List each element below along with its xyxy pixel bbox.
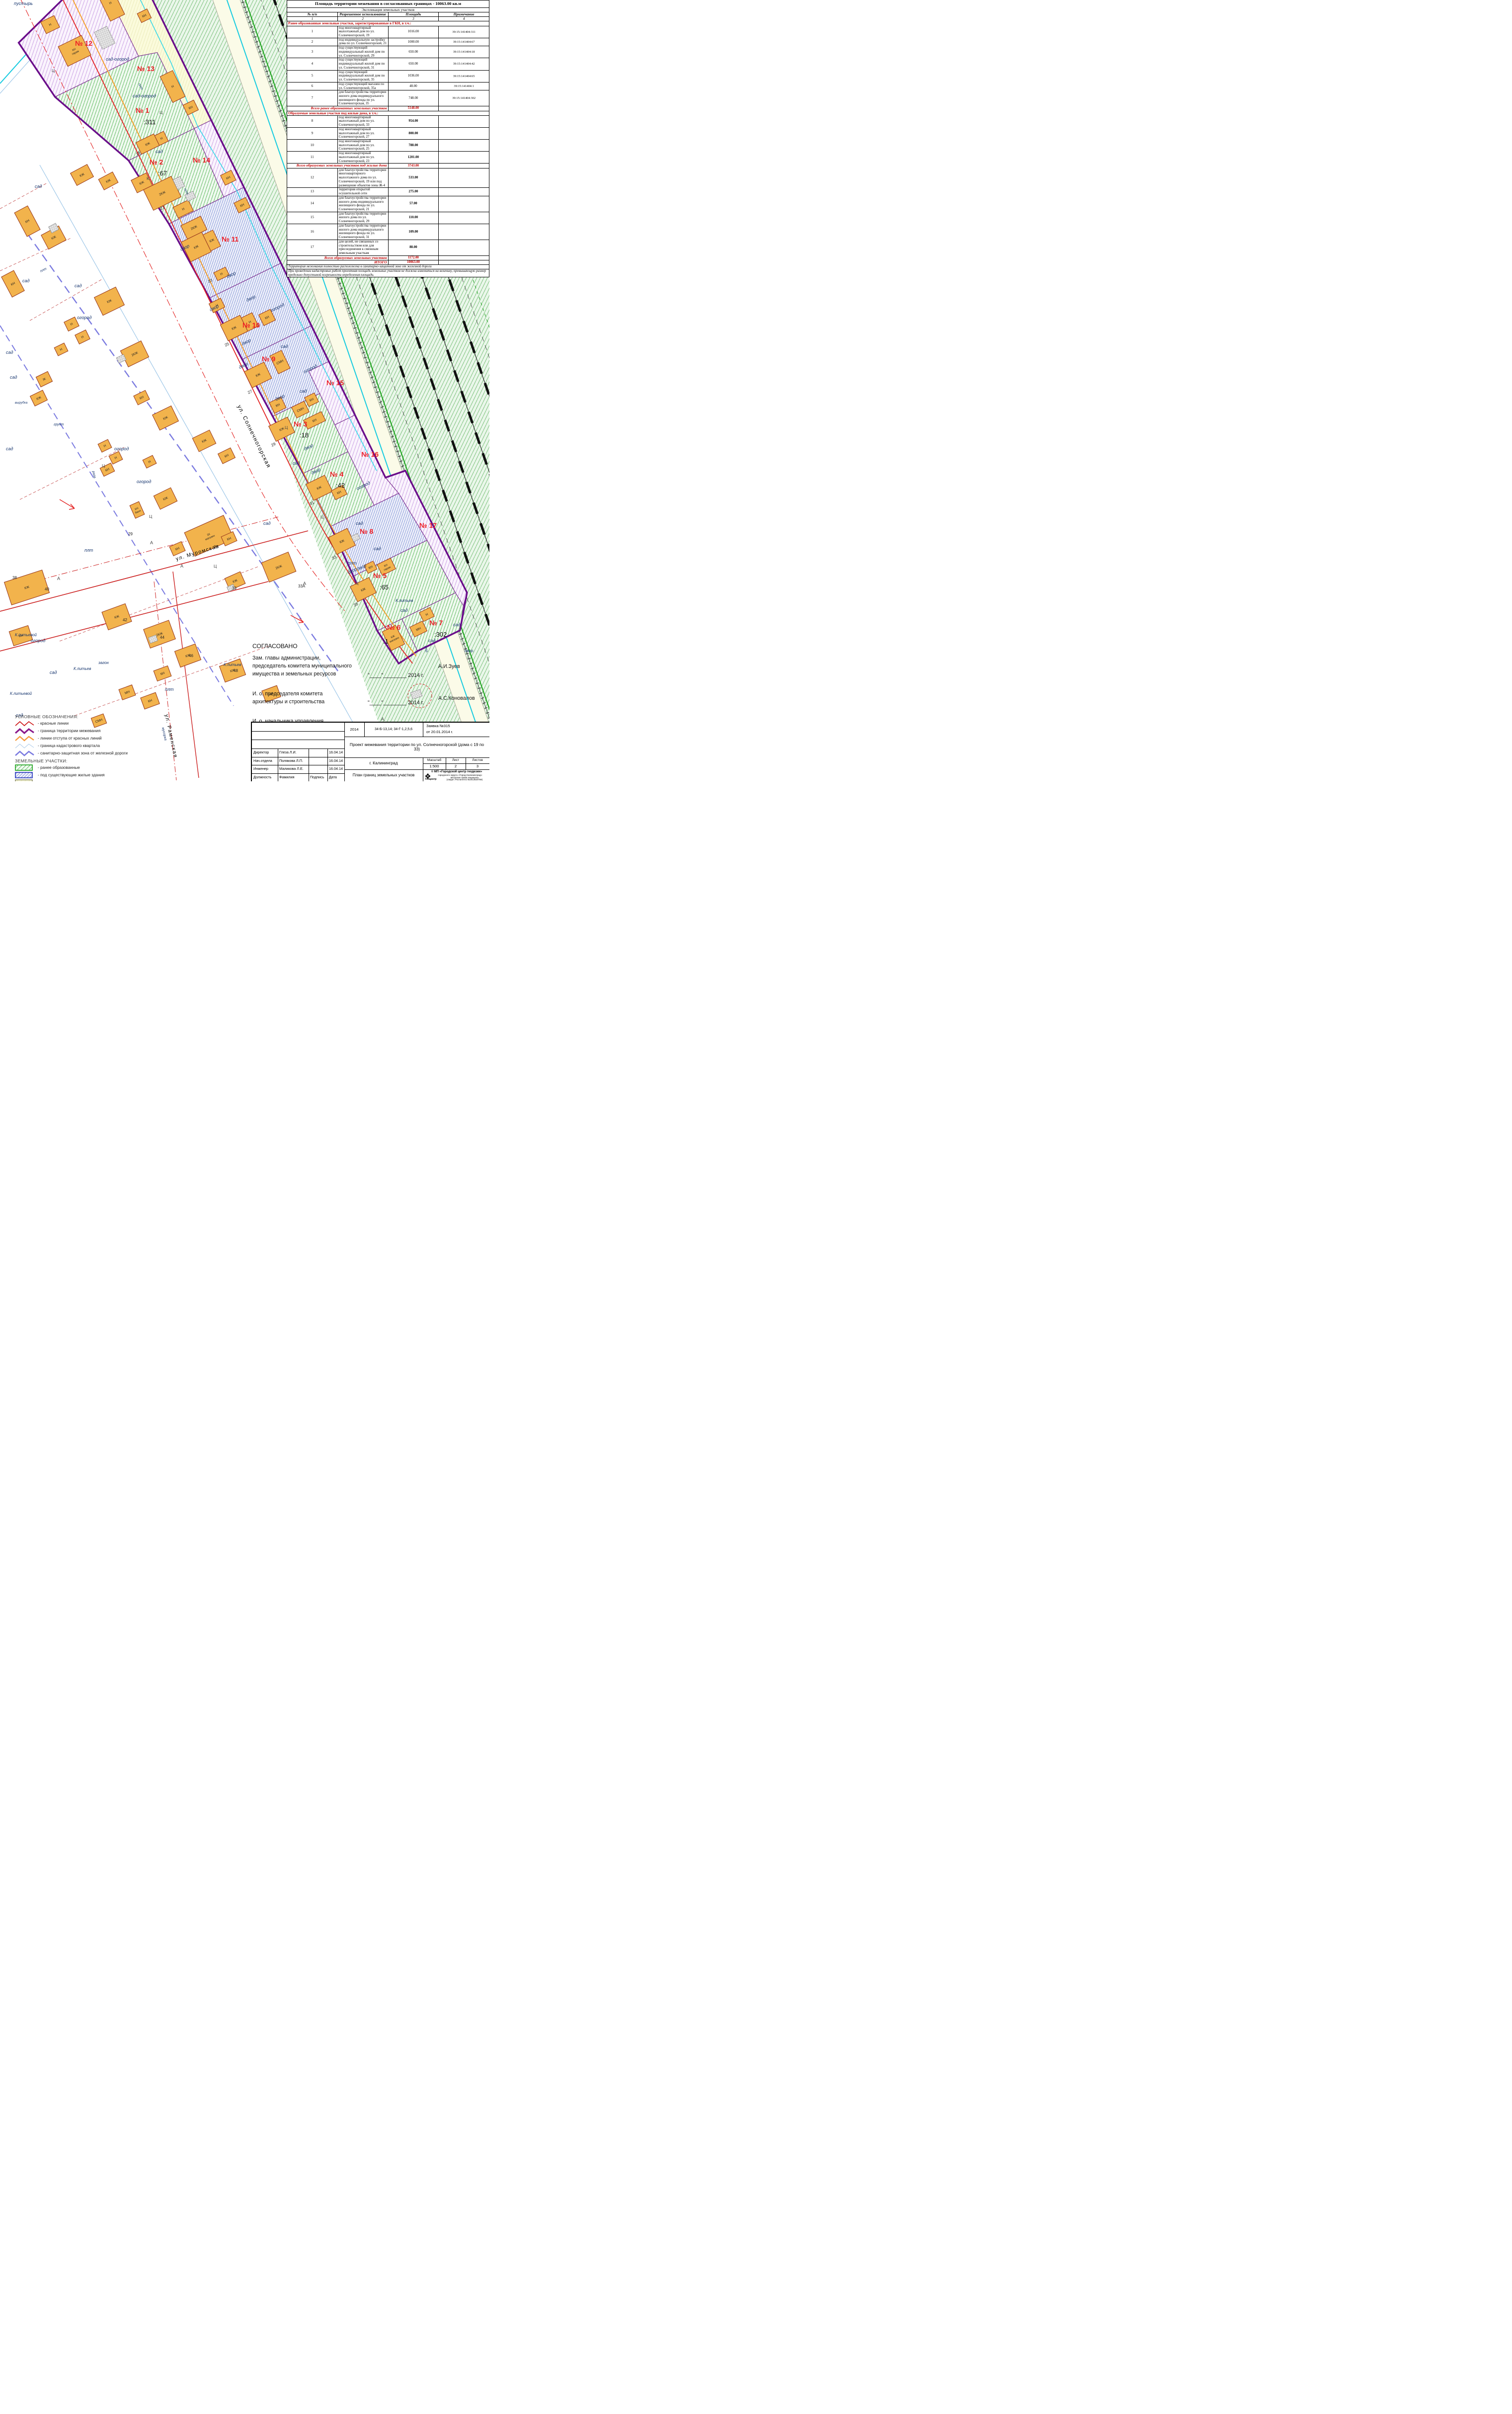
table-cell: 7 (287, 90, 338, 106)
explication-table: Площадь территории межевания в согласова… (287, 0, 489, 277)
table-cell (439, 255, 489, 260)
table-cell (439, 139, 489, 151)
table-cell: 39:15:141404:18 (439, 46, 489, 58)
legend-line-2-swatch-icon (15, 735, 35, 742)
map-text-label: К.литьевой (10, 691, 32, 696)
approval-date-blank: "____"________ 2014 г. (368, 672, 438, 678)
table-row: ИТОГО10063.00 (287, 260, 489, 265)
legend-line-0: - красные линии (15, 720, 189, 727)
table-cell: 2 (337, 17, 388, 21)
table-cell: Разрешенное использование (337, 12, 388, 17)
parcel-number-label: № 12 (75, 39, 92, 47)
legend-area-0-swatch-icon (15, 764, 35, 771)
stamp-sig-cell: Инженер (252, 765, 279, 773)
table-cell: 2 (287, 38, 338, 46)
stamp-sig-cell: Подпись (309, 773, 329, 782)
stamp-sheets-label: Листов (466, 757, 489, 763)
building: Ж (36, 371, 52, 387)
map-text-label: 25 (224, 341, 230, 347)
table-cell: под индивидуальную застройку дома по ул.… (337, 38, 388, 46)
legend-line-1: - граница территории межевания (15, 728, 189, 735)
table-cell: Всего ранее образованных земельных участ… (287, 106, 389, 111)
stamp-year: 2014 (344, 723, 364, 737)
table-cell: под существующий индивидуальный жилой до… (337, 58, 388, 70)
stamp-sig-cell: Маликова Л.Е. (278, 765, 310, 773)
map-text-label: сад (10, 375, 17, 380)
map-text-label: сад (300, 389, 307, 394)
stamp-sig-cell: Глеза Л.И. (278, 749, 310, 757)
map-text-label: сад (263, 521, 271, 526)
table-cell: 10063.00 (388, 260, 439, 265)
map-text-label: сад (6, 350, 13, 355)
stamp-sig-cell: Дата (327, 773, 346, 782)
parcel-number-label: № 17 (419, 521, 437, 529)
map-text-label: сад (50, 670, 57, 675)
parcel-number-label: № 15 (326, 379, 344, 387)
table-cell: 39:15:141404:65 (439, 70, 489, 82)
legend-area-1-swatch-icon (15, 772, 35, 779)
map-text-label: 33 (232, 586, 237, 590)
legend-line-3-label: - граница кадастрового квартала (38, 744, 100, 748)
table-cell: 14 (287, 196, 338, 212)
building: 2КЖ (120, 341, 149, 367)
legend-area-1: - под существующие жилые здания (15, 772, 189, 779)
legend-line-3: - граница кадастрового квартала (15, 743, 189, 749)
table-cell: 1000.00 (388, 38, 439, 46)
title-block: ДиректорГлеза Л.И.16.04.14Нач.отделаПоля… (251, 722, 489, 781)
stamp-sig-cell: Полякова Л.П. (278, 757, 310, 765)
legend-line-2-label: - линии отступа от красных линий (38, 736, 102, 741)
table-row: Всего ранее образованных земельных участ… (287, 106, 489, 111)
table-cell: 3743.00 (388, 164, 439, 168)
building: 2КЖ (261, 552, 296, 583)
table-cell: 4 (439, 17, 489, 21)
approval-position: Зам. главы администрации,председатель ко… (252, 655, 368, 678)
stamp-sig-cell: 16.04.14 (327, 757, 346, 765)
table-cell: № п/п (287, 12, 338, 17)
map-text-label: сад (35, 184, 42, 189)
table-row: 5под существующий индивидуальный жилой д… (287, 70, 489, 82)
parcel-number-label: № 16 (361, 450, 379, 458)
building: КН (141, 692, 159, 709)
building: 2КЖ (144, 620, 175, 648)
stamp-logo-text: Геоцентр (423, 778, 438, 781)
building: Н (143, 455, 157, 468)
building: КНбаня (130, 501, 145, 518)
map-text-label: пустырь (14, 1, 33, 6)
stamp-sig-cell: Директор (252, 749, 279, 757)
map-text-label: сад (356, 521, 363, 526)
building: КЖ (153, 406, 179, 430)
stamp-request2: от 20.01.2014 г. (425, 730, 489, 735)
table-cell: 12 (287, 168, 338, 188)
table-cell (439, 164, 489, 168)
table-cell: 788.00 (388, 139, 439, 151)
approval-date-blank: "____"________ 2014 г. (368, 700, 438, 706)
table-cell: Площадь (388, 12, 439, 17)
table-cell: Всего образуемых земельных участков под … (287, 164, 389, 168)
map-text-label: огород (77, 315, 91, 320)
building: Н (109, 451, 123, 464)
table-cell: 1036.00 (388, 70, 439, 82)
table-cell: Экспликация земельных участков (287, 7, 489, 12)
table-cell: для благоустройства территории жилого до… (337, 90, 388, 106)
table-cell: 39:15:141404:67 (439, 38, 489, 46)
table-cell (439, 168, 489, 188)
map-text-label: Ц (159, 110, 163, 115)
parcel-number-label: № 5 (373, 572, 387, 580)
approval-name: А.С.Коновалов (438, 695, 483, 701)
table-cell: для благоустройства территории жилого до… (337, 212, 388, 224)
stamp-request1: Заявка №315 (425, 724, 489, 729)
map-text-label: 40 (45, 587, 49, 591)
table-cell: 1 (287, 17, 338, 21)
table-cell: 88.00 (388, 240, 439, 255)
plan-sheet: ННКНгаражКНКННКЖНКЖ2КЖНКН2КЖКЖКЖКНННКЖНК… (0, 0, 489, 781)
stamp-sheets-value: 3 (466, 763, 489, 769)
map-text-label: плт (165, 687, 174, 692)
table-cell (439, 152, 489, 164)
legend-title: УСЛОВНЫЕ ОБОЗНАЧЕНИЯ: (15, 714, 189, 719)
table-row: 11под многоквартирный малоэтажный дом по… (287, 152, 489, 164)
cadastral-number-label: :311 (144, 118, 156, 126)
table-row: Образуемые земельные участки под жилые д… (287, 111, 489, 115)
table-cell: 275.00 (388, 188, 439, 196)
map-text-label: сад-огород (106, 57, 129, 62)
table-cell: 109.00 (388, 224, 439, 240)
table-row: 2под индивидуальную застройку дома по ул… (287, 38, 489, 46)
legend-line-0-swatch-icon (15, 720, 35, 727)
table-cell: под многоквартирный малоэтажный дом по у… (337, 115, 388, 127)
parcel-number-label: № 7 (429, 619, 443, 627)
table-cell: для благоустройства территории жилого до… (337, 196, 388, 212)
table-row: 1под многоквартирный малоэтажный дом по … (287, 26, 489, 38)
table-cell: 5 (287, 70, 338, 82)
stamp-sig-cell: 16.04.14 (327, 765, 346, 773)
table-row: При проведении кадастровых работ проектн… (287, 269, 489, 277)
map-text-label: сад (374, 546, 381, 551)
table-cell: 13 (287, 188, 338, 196)
table-cell: 39:15:141404:42 (439, 58, 489, 70)
table-cell: 1016.00 (388, 26, 439, 38)
stamp-sheet-code: 34-Б-13,14; 34-Г-1,2,5,6 (364, 723, 423, 737)
table-row: 16для благоустройства территории жилого … (287, 224, 489, 240)
table-cell (439, 106, 489, 111)
stamp-city: г. Калининград (344, 757, 423, 769)
building: КЖ (175, 644, 201, 667)
legend-area-2-swatch-icon (15, 779, 35, 781)
table-cell: 8 (287, 115, 338, 127)
map-text-label: огород (114, 446, 129, 451)
legend-line-4-swatch-icon (15, 750, 35, 757)
legend-land-title: ЗЕМЕЛЬНЫЕ УЧАСТКИ: (15, 758, 189, 763)
parcel-number-label: № 11 (222, 235, 239, 243)
table-cell: 9 (287, 127, 338, 139)
table-cell (439, 127, 489, 139)
table-cell: 39:15:141404:311 (439, 26, 489, 38)
building: КН (154, 666, 171, 681)
map-text-label: плт (348, 561, 357, 566)
map-text-label: 44 (160, 635, 164, 640)
building: КЖ (30, 390, 48, 406)
table-cell: для целей, не связанных со строительство… (337, 240, 388, 255)
approval-item-1: И. о. председателя комитетаархитектуры и… (252, 690, 483, 706)
stamp-project-title: Проект межевания территории по ул. Солне… (346, 737, 487, 757)
table-cell: 1201.00 (388, 152, 439, 164)
table-cell: 5148.00 (388, 106, 439, 111)
table-cell: Образуемые земельные участки под жилые д… (287, 111, 489, 115)
table-cell: 16 (287, 224, 338, 240)
building: КН (1, 270, 24, 297)
map-text-label: сад (75, 283, 82, 288)
parcel-number-label: № 8 (360, 527, 373, 535)
approvals-title: СОГЛАСОВАНО (252, 643, 483, 650)
approval-item-0: Зам. главы администрации,председатель ко… (252, 655, 483, 678)
map-text-label: 33А (298, 584, 306, 588)
stamp-sig-cell: Фамилия (278, 773, 310, 782)
table-cell: Площадь территории межевания в согласова… (287, 0, 489, 8)
cadastral-number-label: :67 (158, 169, 167, 177)
table-cell (439, 240, 489, 255)
table-row: 3под существующий индивидуальный жилой д… (287, 46, 489, 58)
map-text-label: 29 (270, 441, 276, 447)
cadastral-number-label: :65 (380, 583, 389, 591)
building: КЖ (102, 604, 132, 630)
table-row: 4под существующий индивидуальный жилой д… (287, 58, 489, 70)
stamp-sig-cell (309, 757, 329, 765)
map-text-label: К.литьев (74, 666, 91, 671)
map-text-label: сад (156, 149, 163, 154)
table-cell: Всего образуемых земельных участков (287, 255, 389, 260)
building: КН (218, 448, 236, 464)
table-row: 10под многоквартирный малоэтажный дом по… (287, 139, 489, 151)
table-row: 12для благоустройства территории многокв… (287, 168, 489, 188)
table-row: 8под многоквартирный малоэтажный дом по … (287, 115, 489, 127)
table-cell: Ранее образованные земельные участки, за… (287, 21, 489, 26)
table-cell: 3 (287, 46, 338, 58)
table-cell: 6 (287, 82, 338, 90)
table-cell: 1 (287, 26, 338, 38)
map-text-label: К.литьев (396, 598, 413, 603)
stamp-sheet-label: Лист (446, 757, 466, 763)
table-row: 7для благоустройства территории жилого д… (287, 90, 489, 106)
parcel-number-label: № 6 (387, 623, 400, 631)
table-cell: 57.00 (388, 196, 439, 212)
table-cell: Территория межевания полностью расположе… (287, 265, 489, 269)
map-text-label: плт (84, 548, 93, 553)
map-text-label: плт (40, 267, 47, 273)
parcel-number-label: № 10 (242, 321, 260, 329)
building: КЖ (71, 165, 94, 186)
legend-area-2-label: - территория совместного использования (38, 780, 116, 781)
table-cell (439, 196, 489, 212)
table-cell (439, 115, 489, 127)
table-cell: 748.00 (388, 90, 439, 106)
red-arrow (60, 499, 75, 509)
legend-line-0-label: - красные линии (38, 721, 69, 726)
stamp-sig-cell: Должность (252, 773, 279, 782)
stamp-sig-cell: Нач.отдела (252, 757, 279, 765)
building: КЖ (154, 488, 177, 509)
map-text-label: вырубка (15, 401, 28, 405)
legend-line-2: - линии отступа от красных линий (15, 735, 189, 742)
table-cell: территория открытой осушительной сети (337, 188, 388, 196)
table-cell: При проведении кадастровых работ проектн… (287, 269, 489, 277)
building: КЖ (98, 172, 118, 190)
stamp-sig-cell: 16.04.14 (327, 749, 346, 757)
table-row: 6под существующий магазин по ул. Солнечн… (287, 82, 489, 90)
table-cell: под существующий индивидуальный жилой до… (337, 46, 388, 58)
map-text-label: 38 (12, 576, 17, 580)
legend-area-2: - территория совместного использования (15, 779, 189, 781)
table-cell (439, 188, 489, 196)
legend-area-0-label: - ранее образованные (38, 765, 80, 770)
building: КН (14, 206, 40, 237)
building: Н (54, 343, 68, 356)
stamp-sig-cell (309, 765, 329, 773)
parcel-number-label: № 9 (262, 355, 275, 363)
legend-area-1-label: - под существующие жилые здания (38, 773, 105, 777)
table-row: 17для целей, не связанных со строительст… (287, 240, 489, 255)
approval-name: А.И.Зуев (438, 664, 483, 669)
map-text-label: сад (293, 461, 300, 466)
map-text-label: сад (22, 278, 30, 283)
table-cell (439, 224, 489, 240)
table-row: 13территория открытой осушительной сети2… (287, 188, 489, 196)
map-text-label: Ц (149, 514, 153, 519)
table-cell: 800.00 (388, 127, 439, 139)
stamp-rights2: (свидет. Роспатента №2013620759) (440, 779, 489, 781)
map-text-label: Ц (320, 514, 324, 519)
table-cell: под существующий магазин по ул. Солнечно… (337, 82, 388, 90)
map-text-label: Ц (214, 564, 217, 569)
parcel-number-label: № 13 (137, 65, 155, 73)
building: КЖ (192, 430, 216, 452)
street-name-label: ул. Солнечногорская (236, 404, 272, 469)
map-text-label: 48 (234, 668, 238, 673)
table-cell (439, 212, 489, 224)
map-text-label: загон (98, 661, 109, 665)
cadastral-number-label: :18 (300, 431, 309, 439)
table-cell: 650.00 (388, 58, 439, 70)
table-cell: 4 (287, 58, 338, 70)
table-cell: 17 (287, 240, 338, 255)
map-text-label: К.питьевой (15, 633, 37, 637)
parcel-number-label: № 14 (193, 156, 210, 164)
table-row: Всего образуемых земельных участков1172.… (287, 255, 489, 260)
map-text-label: сад-огород (133, 93, 156, 98)
building: КЖ (94, 287, 125, 316)
building: Н (98, 439, 112, 452)
legend-area-0: - ранее образованные (15, 764, 189, 771)
building: МН (119, 685, 136, 700)
legend-line-3-swatch-icon (15, 743, 35, 749)
map-text-label: сад (400, 608, 408, 613)
map-text-label: Ц (355, 581, 359, 585)
cadastral-number-label: :42 (336, 482, 345, 489)
legend: УСЛОВНЫЕ ОБОЗНАЧЕНИЯ: - красные линии- г… (15, 714, 189, 781)
map-text-label: Ц (102, 463, 105, 468)
table-cell: для благоустройства территории жилого до… (337, 224, 388, 240)
table-cell: 533.00 (388, 168, 439, 188)
table-row: 15для благоустройства территории жилого … (287, 212, 489, 224)
legend-line-4-label: - санитарно-защитная зона от железной до… (38, 751, 128, 755)
table-cell: 39:15:141404:302 (439, 90, 489, 106)
map-text-label: 27 (247, 389, 253, 395)
table-cell: 954.00 (388, 115, 439, 127)
table-row: 9под многоквартирный малоэтажный дом по … (287, 127, 489, 139)
table-row: Всего образуемых земельных участков под … (287, 164, 489, 168)
map-text-label: К. (147, 176, 150, 181)
table-cell: 10 (287, 139, 338, 151)
map-text-label: огород (137, 479, 151, 484)
table-row: 14для благоустройства территории жилого … (287, 196, 489, 212)
map-text-label: огород (31, 638, 45, 643)
map-text-label: К.литьев (224, 663, 241, 667)
table-cell: под многоквартирный малоэтажный дом по у… (337, 152, 388, 164)
map-text-label: сад (453, 622, 461, 627)
legend-line-1-label: - граница территории межевания (38, 729, 100, 733)
table-cell: 15 (287, 212, 338, 224)
legend-line-1-swatch-icon (15, 728, 35, 735)
legend-line-4: - санитарно-защитная зона от железной до… (15, 750, 189, 757)
sanitary-zone-line2 (0, 326, 234, 706)
table-cell: под существующий индивидуальный жилой до… (337, 70, 388, 82)
approval-position: И. о. председателя комитетаархитектуры и… (252, 690, 368, 706)
stamp-scale-label: Масштаб (423, 757, 446, 763)
map-text-label: сад (6, 446, 13, 451)
stamp-doc-type: План границ земельных участков (344, 769, 423, 781)
map-text-label: А (57, 576, 60, 581)
map-text-label: А (150, 540, 153, 545)
map-text-label: грунт (54, 423, 64, 426)
map-text-label: 46 (189, 654, 193, 658)
cadastral-number-label: :302 (434, 631, 447, 638)
table-cell: 39:15:141404:1 (439, 82, 489, 90)
map-text-label: Ц (285, 425, 288, 430)
table-cell: 110.00 (388, 212, 439, 224)
map-text-label: А (180, 564, 183, 569)
table-cell: 3 (388, 17, 439, 21)
table-cell: Примечание (439, 12, 489, 17)
table-row: Территория межевания полностью расположе… (287, 265, 489, 269)
parcel-number-label: № 1 (136, 106, 149, 114)
stamp-scale-value: 1:500 (423, 763, 446, 769)
parcel-number-label: № 4 (330, 470, 343, 478)
parcel-number-label: № 3 (294, 420, 307, 428)
parcel-number-label: № 2 (150, 158, 163, 166)
stamp-sig-cell (309, 749, 329, 757)
table-cell: под многоквартирный малоэтажный дом по у… (337, 26, 388, 38)
map-text-label: 31 (214, 545, 218, 549)
table-cell: ИТОГО (287, 260, 389, 265)
table-cell: 1172.00 (388, 255, 439, 260)
building: Н (75, 330, 90, 344)
map-text-label: Ц (52, 68, 55, 73)
table-cell: для благоустройства территории многоквар… (337, 168, 388, 188)
map-text-label: 42 (123, 618, 127, 622)
map-text-label: сад (281, 344, 288, 349)
table-cell: 11 (287, 152, 338, 164)
table-cell: 650.00 (388, 46, 439, 58)
table-cell (439, 260, 489, 265)
table-row: Ранее образованные земельные участки, за… (287, 21, 489, 26)
table-cell: под многоквартирный малоэтажный дом по у… (337, 127, 388, 139)
stamp-sheet-value: 2 (446, 763, 466, 769)
map-text-label: 29 (128, 532, 133, 536)
table-cell: под многоквартирный малоэтажный дом по у… (337, 139, 388, 151)
table-cell: 48.00 (388, 82, 439, 90)
